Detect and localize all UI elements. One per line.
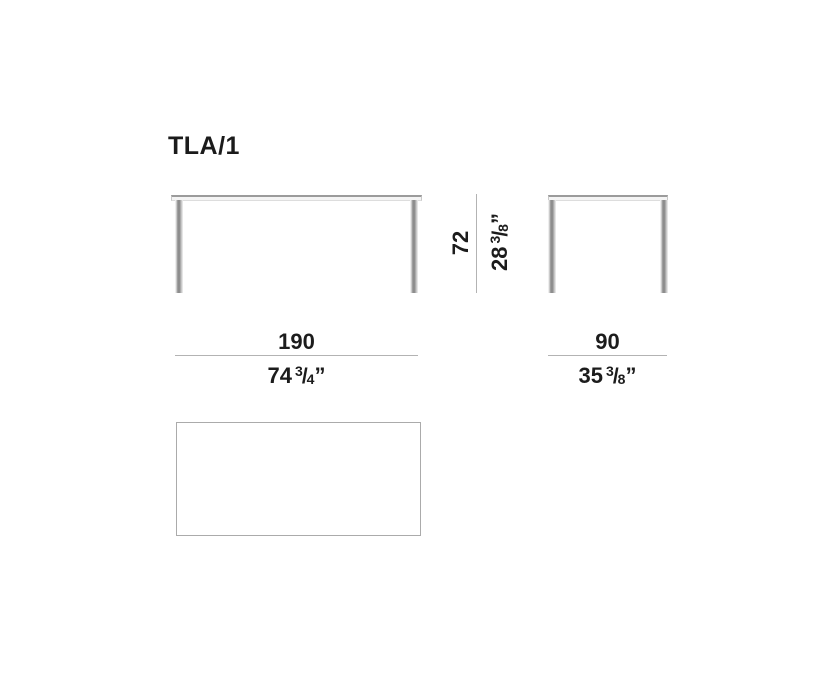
depth-inch-label: 353/8” — [548, 360, 667, 390]
width-inch-label: 743/4” — [175, 360, 418, 390]
height-inch-label: 283/8” — [484, 213, 514, 271]
front-tabletop — [171, 195, 422, 201]
product-code-title: TLA/1 — [168, 132, 240, 161]
width-cm-value: 190 — [278, 329, 315, 354]
fraction-denominator: 8 — [495, 224, 511, 232]
height-dimension-line — [476, 194, 477, 293]
inch-mark: ” — [487, 213, 512, 224]
depth-inch-whole: 35 — [579, 363, 603, 388]
width-dimension-line — [175, 355, 418, 356]
height-cm-label: 72 — [450, 231, 472, 255]
top-view-outline — [176, 422, 421, 536]
depth-cm-value: 90 — [595, 329, 619, 354]
front-leg-right — [410, 200, 418, 293]
side-leg-left — [548, 200, 556, 293]
inch-mark: ” — [314, 363, 325, 388]
depth-dimension-line — [548, 355, 667, 356]
side-leg-right — [660, 200, 668, 293]
height-cm-value: 72 — [448, 231, 473, 255]
width-cm-label: 190 — [175, 331, 418, 353]
technical-drawing-canvas: TLA/1 72 283/8” 190 743/4” 90 — [0, 0, 840, 679]
width-inch-whole: 74 — [268, 363, 292, 388]
height-inch-whole: 28 — [487, 246, 512, 270]
front-leg-left — [175, 200, 183, 293]
depth-cm-label: 90 — [548, 331, 667, 353]
inch-mark: ” — [625, 363, 636, 388]
side-tabletop — [548, 195, 668, 201]
